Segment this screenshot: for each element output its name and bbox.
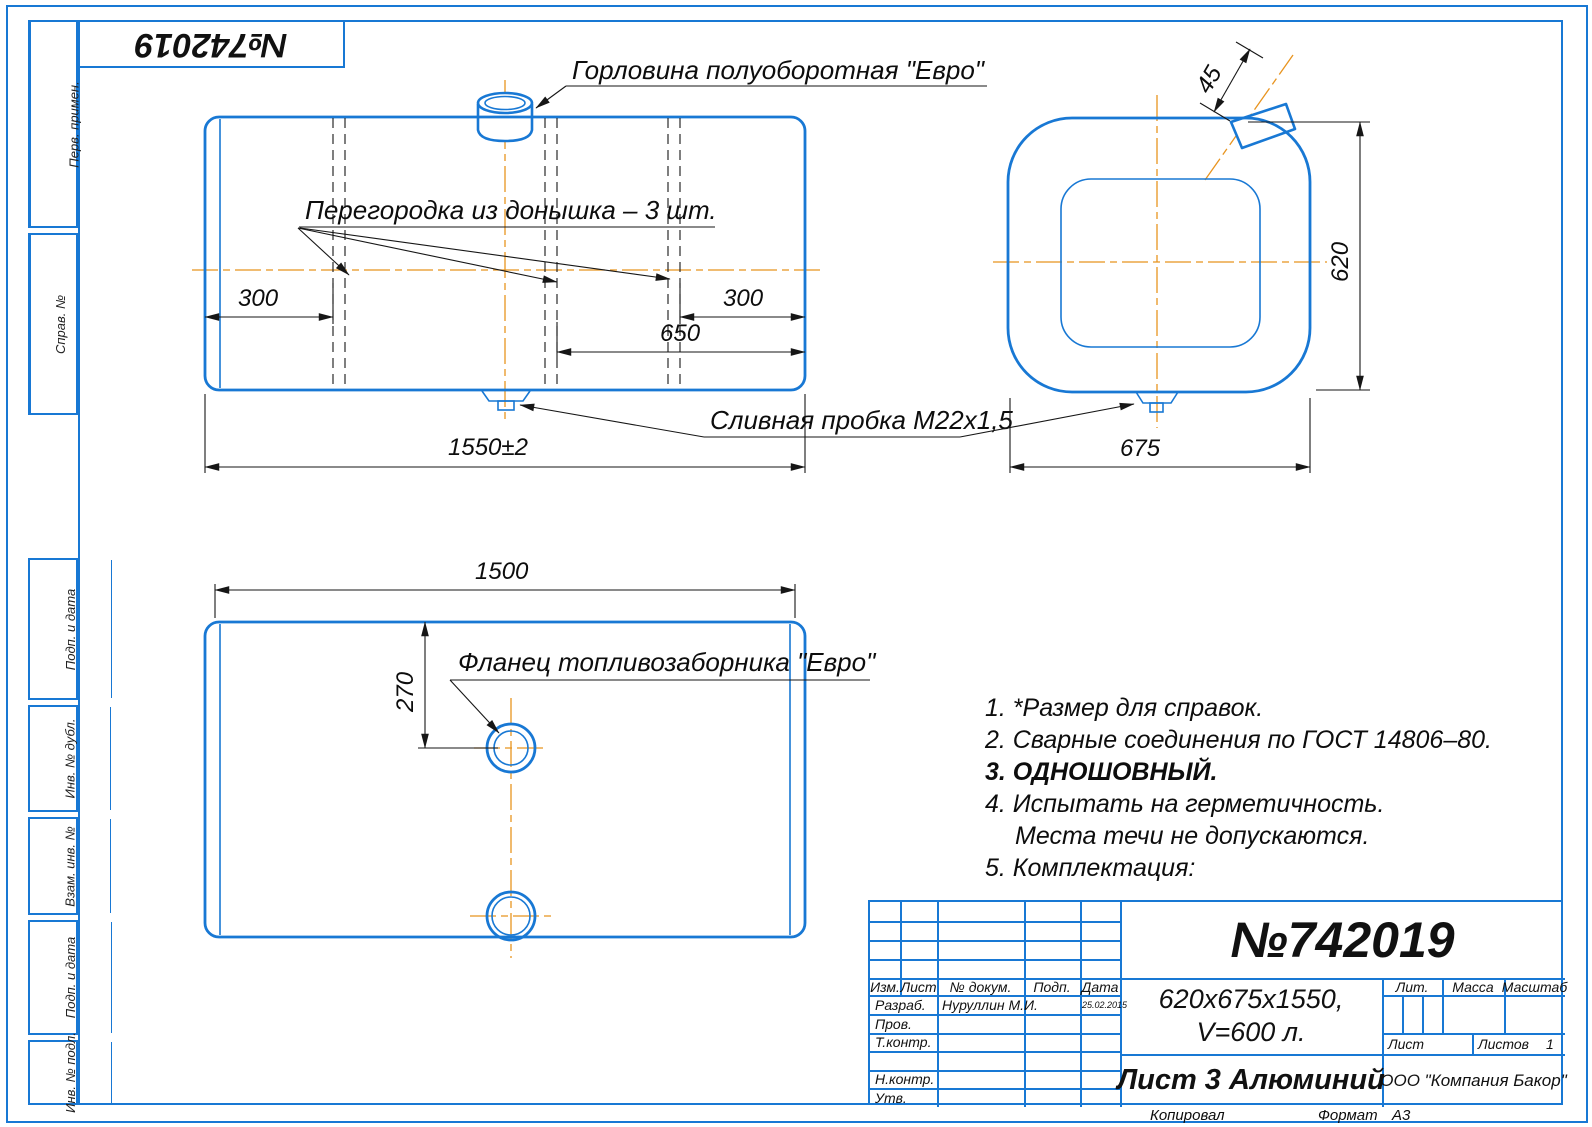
margin-box-podp-data-2: Подп. и дата <box>28 920 78 1035</box>
margin-label: Подп. и дата <box>63 588 78 669</box>
tb-row-razrab: Разраб. <box>875 995 937 1014</box>
tb-lit-label: Лит. <box>1382 978 1442 995</box>
margin-box-inv-dubl: Инв. № дубл. <box>28 705 78 812</box>
margin-label: Взам. инв. № <box>63 826 78 906</box>
margin-label: Инв. № подл. <box>63 1032 78 1113</box>
tb-company: ООО "Компания Бакор" <box>1382 1054 1565 1107</box>
tb-list-label: Лист <box>1388 1033 1472 1054</box>
tb-massa-label: Масса <box>1442 978 1504 995</box>
tb-material: Лист 3 Алюминий <box>1120 1054 1382 1107</box>
margin-box-sprav-no: Справ. № <box>28 233 78 415</box>
margin-box-vzam-inv: Взам. инв. № <box>28 817 78 915</box>
margin-label: Подп. и дата <box>63 937 78 1018</box>
tb-razrab-name: Нуруллин М.И. <box>942 995 1024 1014</box>
tb-listov-label: Листов <box>1478 1033 1538 1054</box>
format-label: Формат <box>1318 1107 1378 1124</box>
tb-masshtab-label: Масштаб <box>1504 978 1565 995</box>
margin-box-inv-podl: Инв. № подл. <box>28 1040 78 1105</box>
tb-row-tkontr: Т.контр. <box>875 1033 937 1051</box>
tb-size-designation: 620х675х1550, V=600 л. <box>1120 978 1382 1054</box>
margin-box-podp-data-1: Подп. и дата <box>28 558 78 700</box>
copied-label: Копировал <box>1150 1107 1225 1124</box>
tb-header-dokum: № докум. <box>937 978 1024 995</box>
tb-row-utv: Утв. <box>875 1088 937 1107</box>
note-line: 5. Комплектация: <box>985 852 1560 884</box>
tb-row-nkontr: Н.контр. <box>875 1070 937 1088</box>
note-line: Места течи не допускаются. <box>985 820 1560 852</box>
tb-row-prov: Пров. <box>875 1014 937 1033</box>
technical-notes: 1. *Размер для справок. 2. Сварные соеди… <box>985 692 1560 884</box>
note-line: 2. Сварные соединения по ГОСТ 14806–80. <box>985 724 1560 756</box>
title-block: Изм. Лист № докум. Подп. Дата Разраб. Ну… <box>868 900 1563 1105</box>
tb-razrab-date: 25.02.2015 <box>1082 995 1120 1014</box>
tb-size-line1: 620х675х1550, <box>1159 983 1344 1016</box>
note-line: 4. Испытать на герметичность. <box>985 788 1560 820</box>
tb-header-list: Лист <box>900 978 937 995</box>
drawing-sheet: №742019 Перв. примен. Справ. № Подп. и д… <box>0 0 1592 1127</box>
tb-header-izm: Изм. <box>870 978 900 995</box>
format-value: А3 <box>1392 1107 1410 1124</box>
note-line: 1. *Размер для справок. <box>985 692 1560 724</box>
tb-header-data: Дата <box>1080 978 1120 995</box>
rotated-doc-number-stamp: №742019 <box>78 20 345 68</box>
note-line: 3. ОДНОШОВНЫЙ. <box>985 756 1560 788</box>
tb-header-podp: Подп. <box>1024 978 1080 995</box>
margin-label: Справ. № <box>53 294 68 353</box>
margin-label: Инв. № дубл. <box>62 719 77 799</box>
margin-label: Перв. примен. <box>67 81 82 167</box>
stamp-number: №742019 <box>135 25 287 64</box>
tb-doc-number: №742019 <box>1120 902 1565 978</box>
margin-box-perv-primen: Перв. примен. <box>28 20 78 228</box>
tb-size-line2: V=600 л. <box>1196 1016 1305 1049</box>
tb-listov-value: 1 <box>1546 1033 1562 1054</box>
